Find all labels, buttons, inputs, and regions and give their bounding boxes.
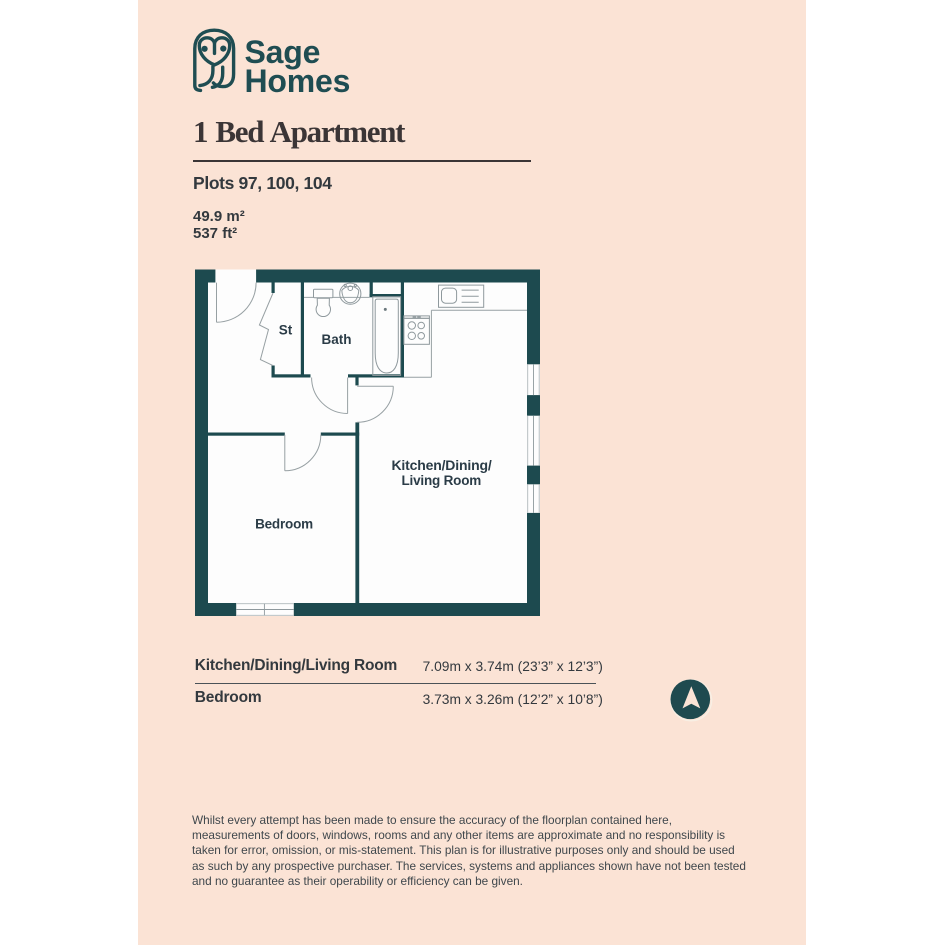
svg-text:St: St (279, 322, 293, 337)
svg-text:Bath: Bath (322, 332, 352, 347)
svg-text:Bedroom: Bedroom (255, 517, 313, 532)
svg-text:Kitchen/Dining/: Kitchen/Dining/ (391, 457, 491, 473)
svg-text:Living Room: Living Room (402, 473, 482, 488)
